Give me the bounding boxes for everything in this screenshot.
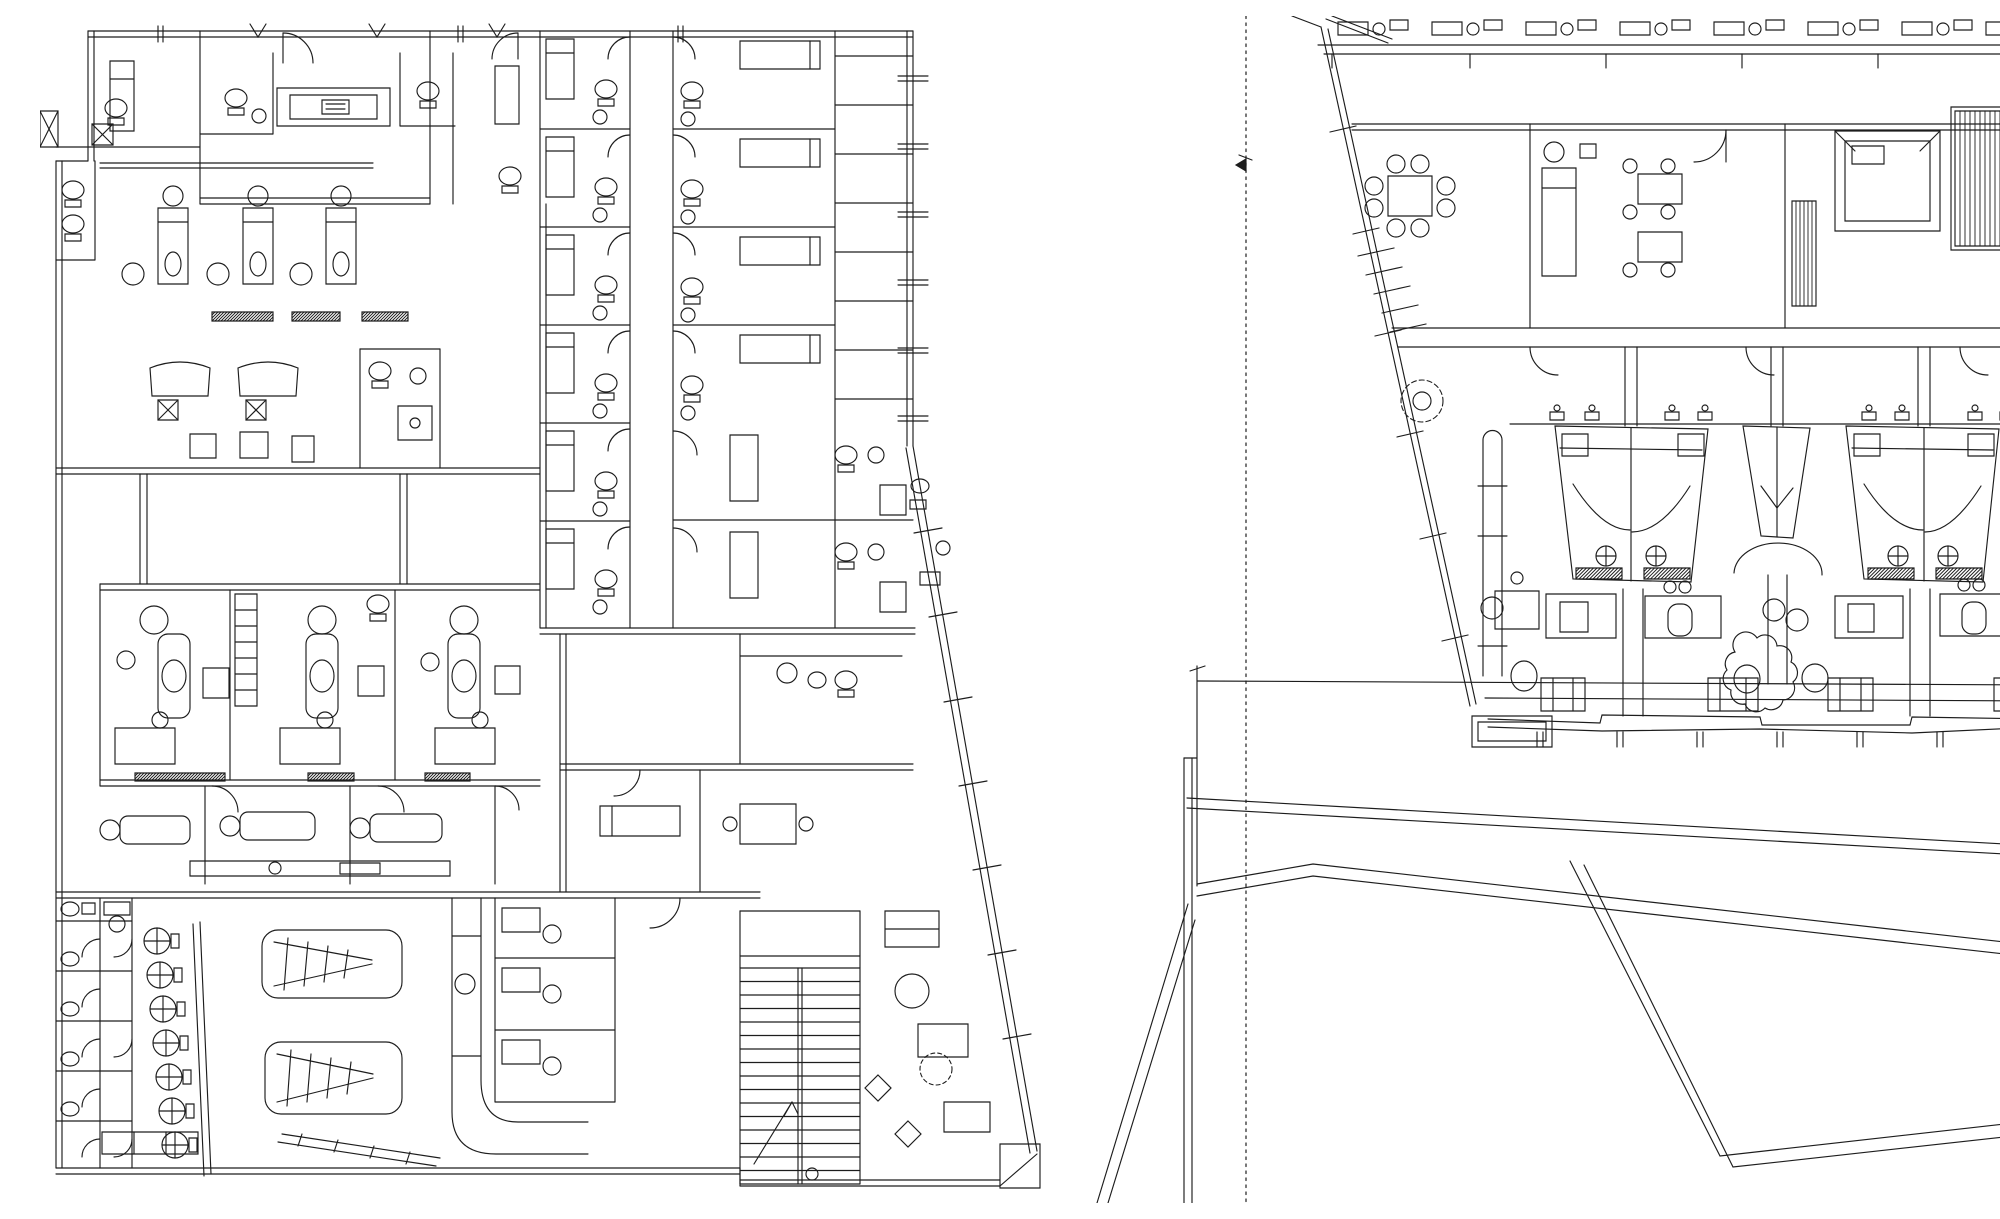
left-wing-east-rooms [560, 431, 913, 892]
right-wing-desk-area [1197, 572, 2000, 716]
floor-plan-canvas [40, 16, 2000, 1203]
section-line [1236, 16, 1252, 1203]
left-wing-top-rooms [56, 31, 521, 204]
right-wing-upper-rooms [1358, 107, 2000, 422]
left-wing-hall [56, 892, 760, 1176]
left-wing-desk-rooms [56, 349, 540, 584]
left-wing-treatment-band1 [100, 584, 540, 786]
left-wing-stair-core [740, 911, 860, 1184]
left-wing-lounge-slant [865, 479, 990, 1147]
right-wing-shell [1292, 16, 2000, 747]
left-wing-treatment-band2 [100, 786, 519, 884]
left-wing-guestroom-column [540, 31, 915, 634]
floor-plan-sheet [40, 16, 2000, 1203]
left-wing-exam-area [56, 161, 408, 321]
